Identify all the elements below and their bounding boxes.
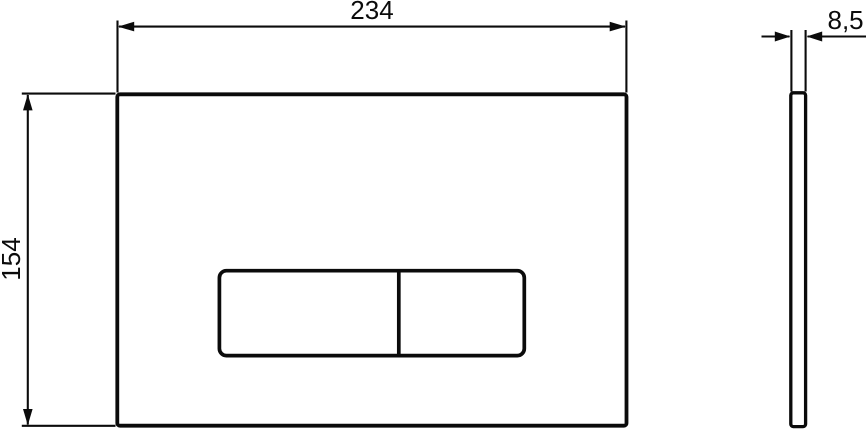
svg-text:154: 154 [0, 237, 26, 280]
svg-text:8,5: 8,5 [828, 5, 864, 35]
svg-text:234: 234 [350, 0, 393, 25]
